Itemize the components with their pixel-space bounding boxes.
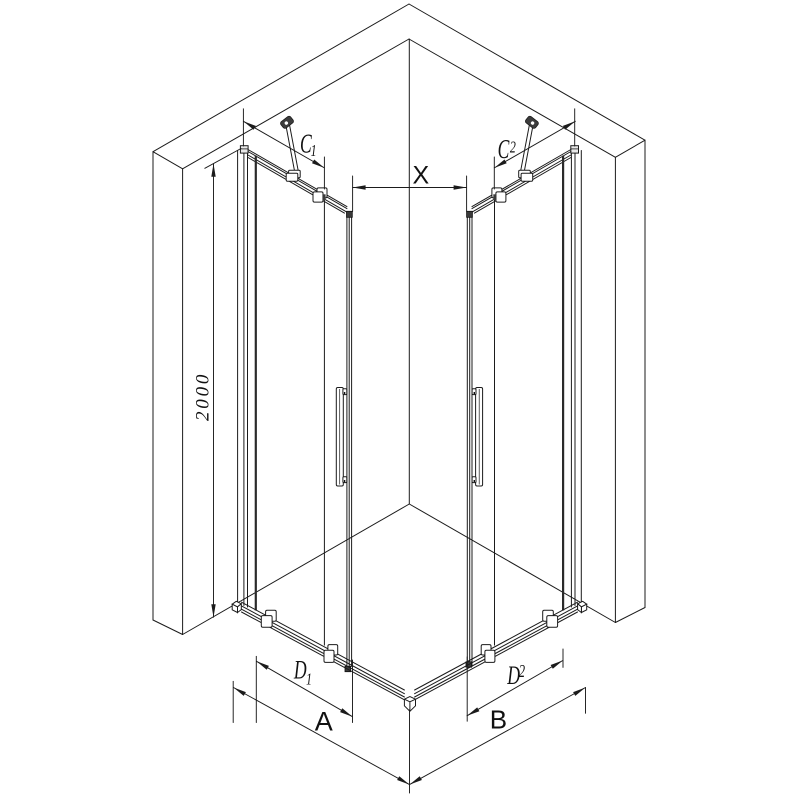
svg-text:X: X	[413, 161, 430, 189]
svg-text:2000: 2000	[193, 372, 214, 421]
svg-text:B: B	[490, 705, 507, 735]
svg-text:2: 2	[519, 662, 525, 682]
svg-text:D: D	[293, 655, 307, 684]
svg-text:1: 1	[311, 142, 317, 161]
svg-text:D: D	[506, 661, 520, 690]
svg-text:1: 1	[306, 671, 312, 690]
svg-text:2: 2	[510, 139, 516, 158]
svg-text:A: A	[315, 707, 333, 737]
svg-text:C: C	[498, 134, 510, 164]
